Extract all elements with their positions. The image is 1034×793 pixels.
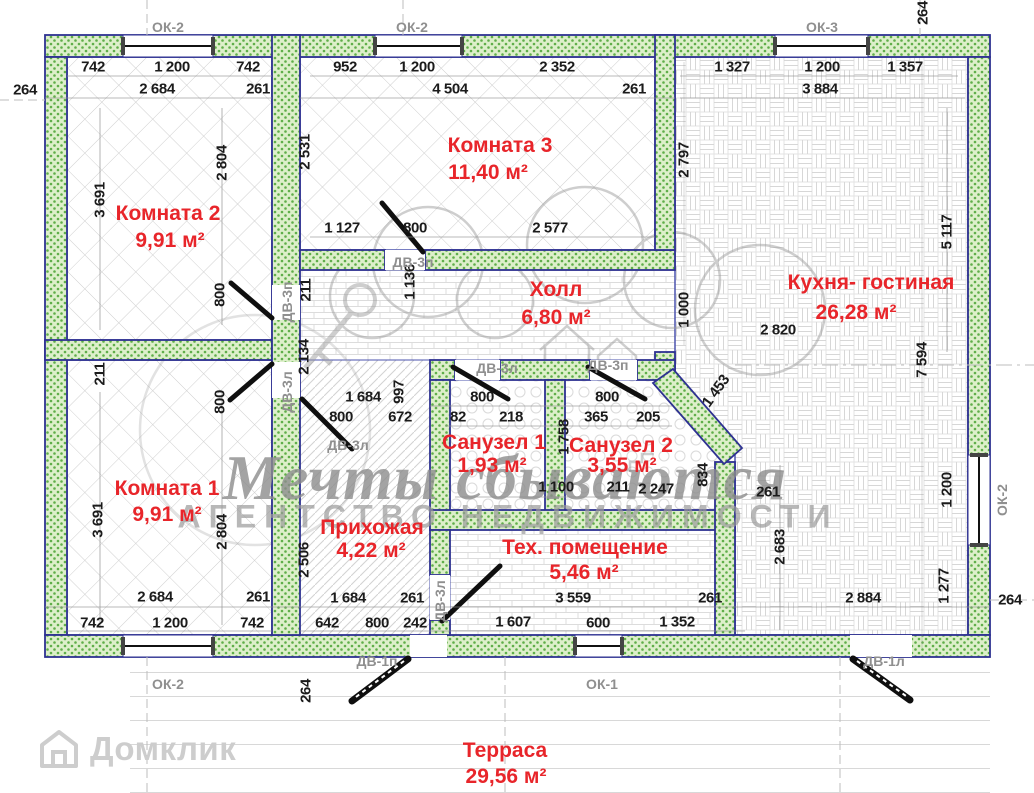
dimension-label: 242 <box>403 615 427 632</box>
room-label: Прихожая <box>320 516 424 540</box>
room-label: 9,91 м² <box>132 503 201 527</box>
dimension-label: 800 <box>403 220 427 237</box>
dimension-label: 2 884 <box>845 590 881 607</box>
dimension-label: 82 <box>450 409 466 426</box>
room-label: 4,22 м² <box>336 539 405 563</box>
dimension-label: 800 <box>212 283 229 307</box>
dimension-label: 1 327 <box>714 59 750 76</box>
opening-label: ДВ-1п <box>357 653 398 669</box>
room-label: Комната 1 <box>115 477 220 501</box>
opening-label: ОК-3 <box>806 19 838 35</box>
room-label: Холл <box>530 278 583 302</box>
room-label: Тех. помещение <box>502 536 668 560</box>
opening-label: ДВ-3л <box>279 371 295 412</box>
dimension-label: 1 200 <box>804 59 840 76</box>
dimension-label: 2 577 <box>532 220 568 237</box>
room-label: 26,28 м² <box>816 301 897 325</box>
dimension-label: 834 <box>695 463 712 487</box>
labels-layer: 7421 2007422 6842612643 6912 8049521 200… <box>0 0 1034 793</box>
dimension-label: 600 <box>586 615 610 632</box>
room-label: 11,40 м² <box>448 161 528 185</box>
dimension-label: 261 <box>246 589 270 606</box>
dimension-label: 800 <box>212 390 229 414</box>
dimension-label: 3 884 <box>802 81 838 98</box>
dimension-label: 7 594 <box>914 342 931 378</box>
dimension-label: 2 247 <box>638 481 674 498</box>
dimension-label: 261 <box>698 590 722 607</box>
room-label: Комната 3 <box>448 134 553 158</box>
dimension-label: 264 <box>915 1 932 25</box>
opening-label: ДВ-3п <box>588 357 629 373</box>
opening-label: ДВ-3п <box>393 254 434 270</box>
opening-label: ДВ-3л <box>327 437 368 453</box>
room-label: 3,55 м² <box>587 454 656 478</box>
room-label: 6,80 м² <box>521 306 590 330</box>
dimension-label: 800 <box>595 389 619 406</box>
domclick-label: Домклик <box>90 730 236 768</box>
dimension-label: 264 <box>998 592 1022 609</box>
dimension-label: 742 <box>236 59 260 76</box>
dimension-label: 672 <box>388 409 412 426</box>
dimension-label: 1 357 <box>887 59 923 76</box>
dimension-label: 742 <box>80 615 104 632</box>
room-label: 9,91 м² <box>135 229 204 253</box>
dimension-label: 1 100 <box>538 479 574 496</box>
dimension-label: 1 200 <box>154 59 190 76</box>
dimension-label: 211 <box>92 363 109 386</box>
dimension-label: 264 <box>298 679 315 703</box>
room-label: 5,46 м² <box>549 561 618 585</box>
dimension-label: 2 684 <box>137 589 173 606</box>
dimension-label: 742 <box>81 59 105 76</box>
room-label: Комната 2 <box>116 202 221 226</box>
room-label: Кухня- гостиная <box>788 271 955 295</box>
dimension-label: 1 000 <box>676 292 693 328</box>
dimension-label: 1 127 <box>324 220 360 237</box>
dimension-label: 1 277 <box>936 568 953 604</box>
dimension-label: 211 <box>298 279 315 302</box>
dimension-label: 1 200 <box>399 59 435 76</box>
dimension-label: 2 804 <box>214 145 231 181</box>
dimension-label: 3 691 <box>90 502 107 538</box>
dimension-label: 264 <box>13 82 37 99</box>
dimension-label: 1 684 <box>330 590 366 607</box>
dimension-label: 1 200 <box>152 615 188 632</box>
opening-label: ОК-2 <box>152 676 184 692</box>
opening-label: ДВ-3п <box>279 282 295 323</box>
dimension-label: 2 134 <box>296 339 313 375</box>
dimension-label: 800 <box>365 615 389 632</box>
domclick-logo: Домклик <box>38 728 236 770</box>
domclick-house-icon <box>38 728 80 770</box>
dimension-label: 2 797 <box>676 142 693 178</box>
dimension-label: 2 683 <box>772 529 789 565</box>
dimension-label: 261 <box>622 81 646 98</box>
opening-label: ОК-1 <box>586 676 618 692</box>
dimension-label: 800 <box>329 409 353 426</box>
dimension-label: 3 559 <box>555 590 591 607</box>
dimension-label: 3 691 <box>92 182 109 218</box>
room-label: 29,56 м² <box>466 765 547 789</box>
opening-label: ОК-2 <box>396 19 428 35</box>
dimension-label: 261 <box>400 590 424 607</box>
dimension-label: 1 352 <box>659 614 695 631</box>
dimension-label: 1 453 <box>699 372 734 411</box>
dimension-label: 1 684 <box>345 389 381 406</box>
dimension-label: 1 607 <box>495 614 531 631</box>
dimension-label: 365 <box>584 409 608 426</box>
opening-label: ОК-2 <box>994 484 1010 516</box>
room-label: 1,93 м² <box>457 454 526 478</box>
opening-label: ДВ-3л <box>476 360 517 376</box>
dimension-label: 218 <box>499 409 523 426</box>
opening-label: ОК-2 <box>152 19 184 35</box>
dimension-label: 1 200 <box>939 472 956 508</box>
dimension-label: 261 <box>246 81 270 98</box>
dimension-label: 952 <box>333 59 357 76</box>
dimension-label: 211 <box>607 479 630 496</box>
dimension-label: 261 <box>756 484 780 501</box>
opening-label: ДВ-3л <box>432 580 448 621</box>
dimension-label: 997 <box>391 380 408 404</box>
dimension-label: 5 117 <box>939 215 956 250</box>
floor-plan-canvas: Мечты сбываются АГЕНТСТВО НЕДВИЖИМОСТИ Д… <box>0 0 1034 793</box>
room-label: Терраса <box>463 739 547 763</box>
dimension-label: 205 <box>636 409 660 426</box>
dimension-label: 800 <box>470 389 494 406</box>
dimension-label: 2 506 <box>296 542 313 578</box>
dimension-label: 2 684 <box>139 81 175 98</box>
room-label: Санузел 1 <box>442 431 546 455</box>
dimension-label: 642 <box>315 615 339 632</box>
dimension-label: 2 352 <box>539 59 575 76</box>
dimension-label: 2 804 <box>214 514 231 550</box>
dimension-label: 742 <box>240 615 264 632</box>
dimension-label: 4 504 <box>432 81 468 98</box>
opening-label: ДВ-1л <box>863 653 904 669</box>
dimension-label: 2 820 <box>760 322 796 339</box>
dimension-label: 2 531 <box>297 134 314 170</box>
